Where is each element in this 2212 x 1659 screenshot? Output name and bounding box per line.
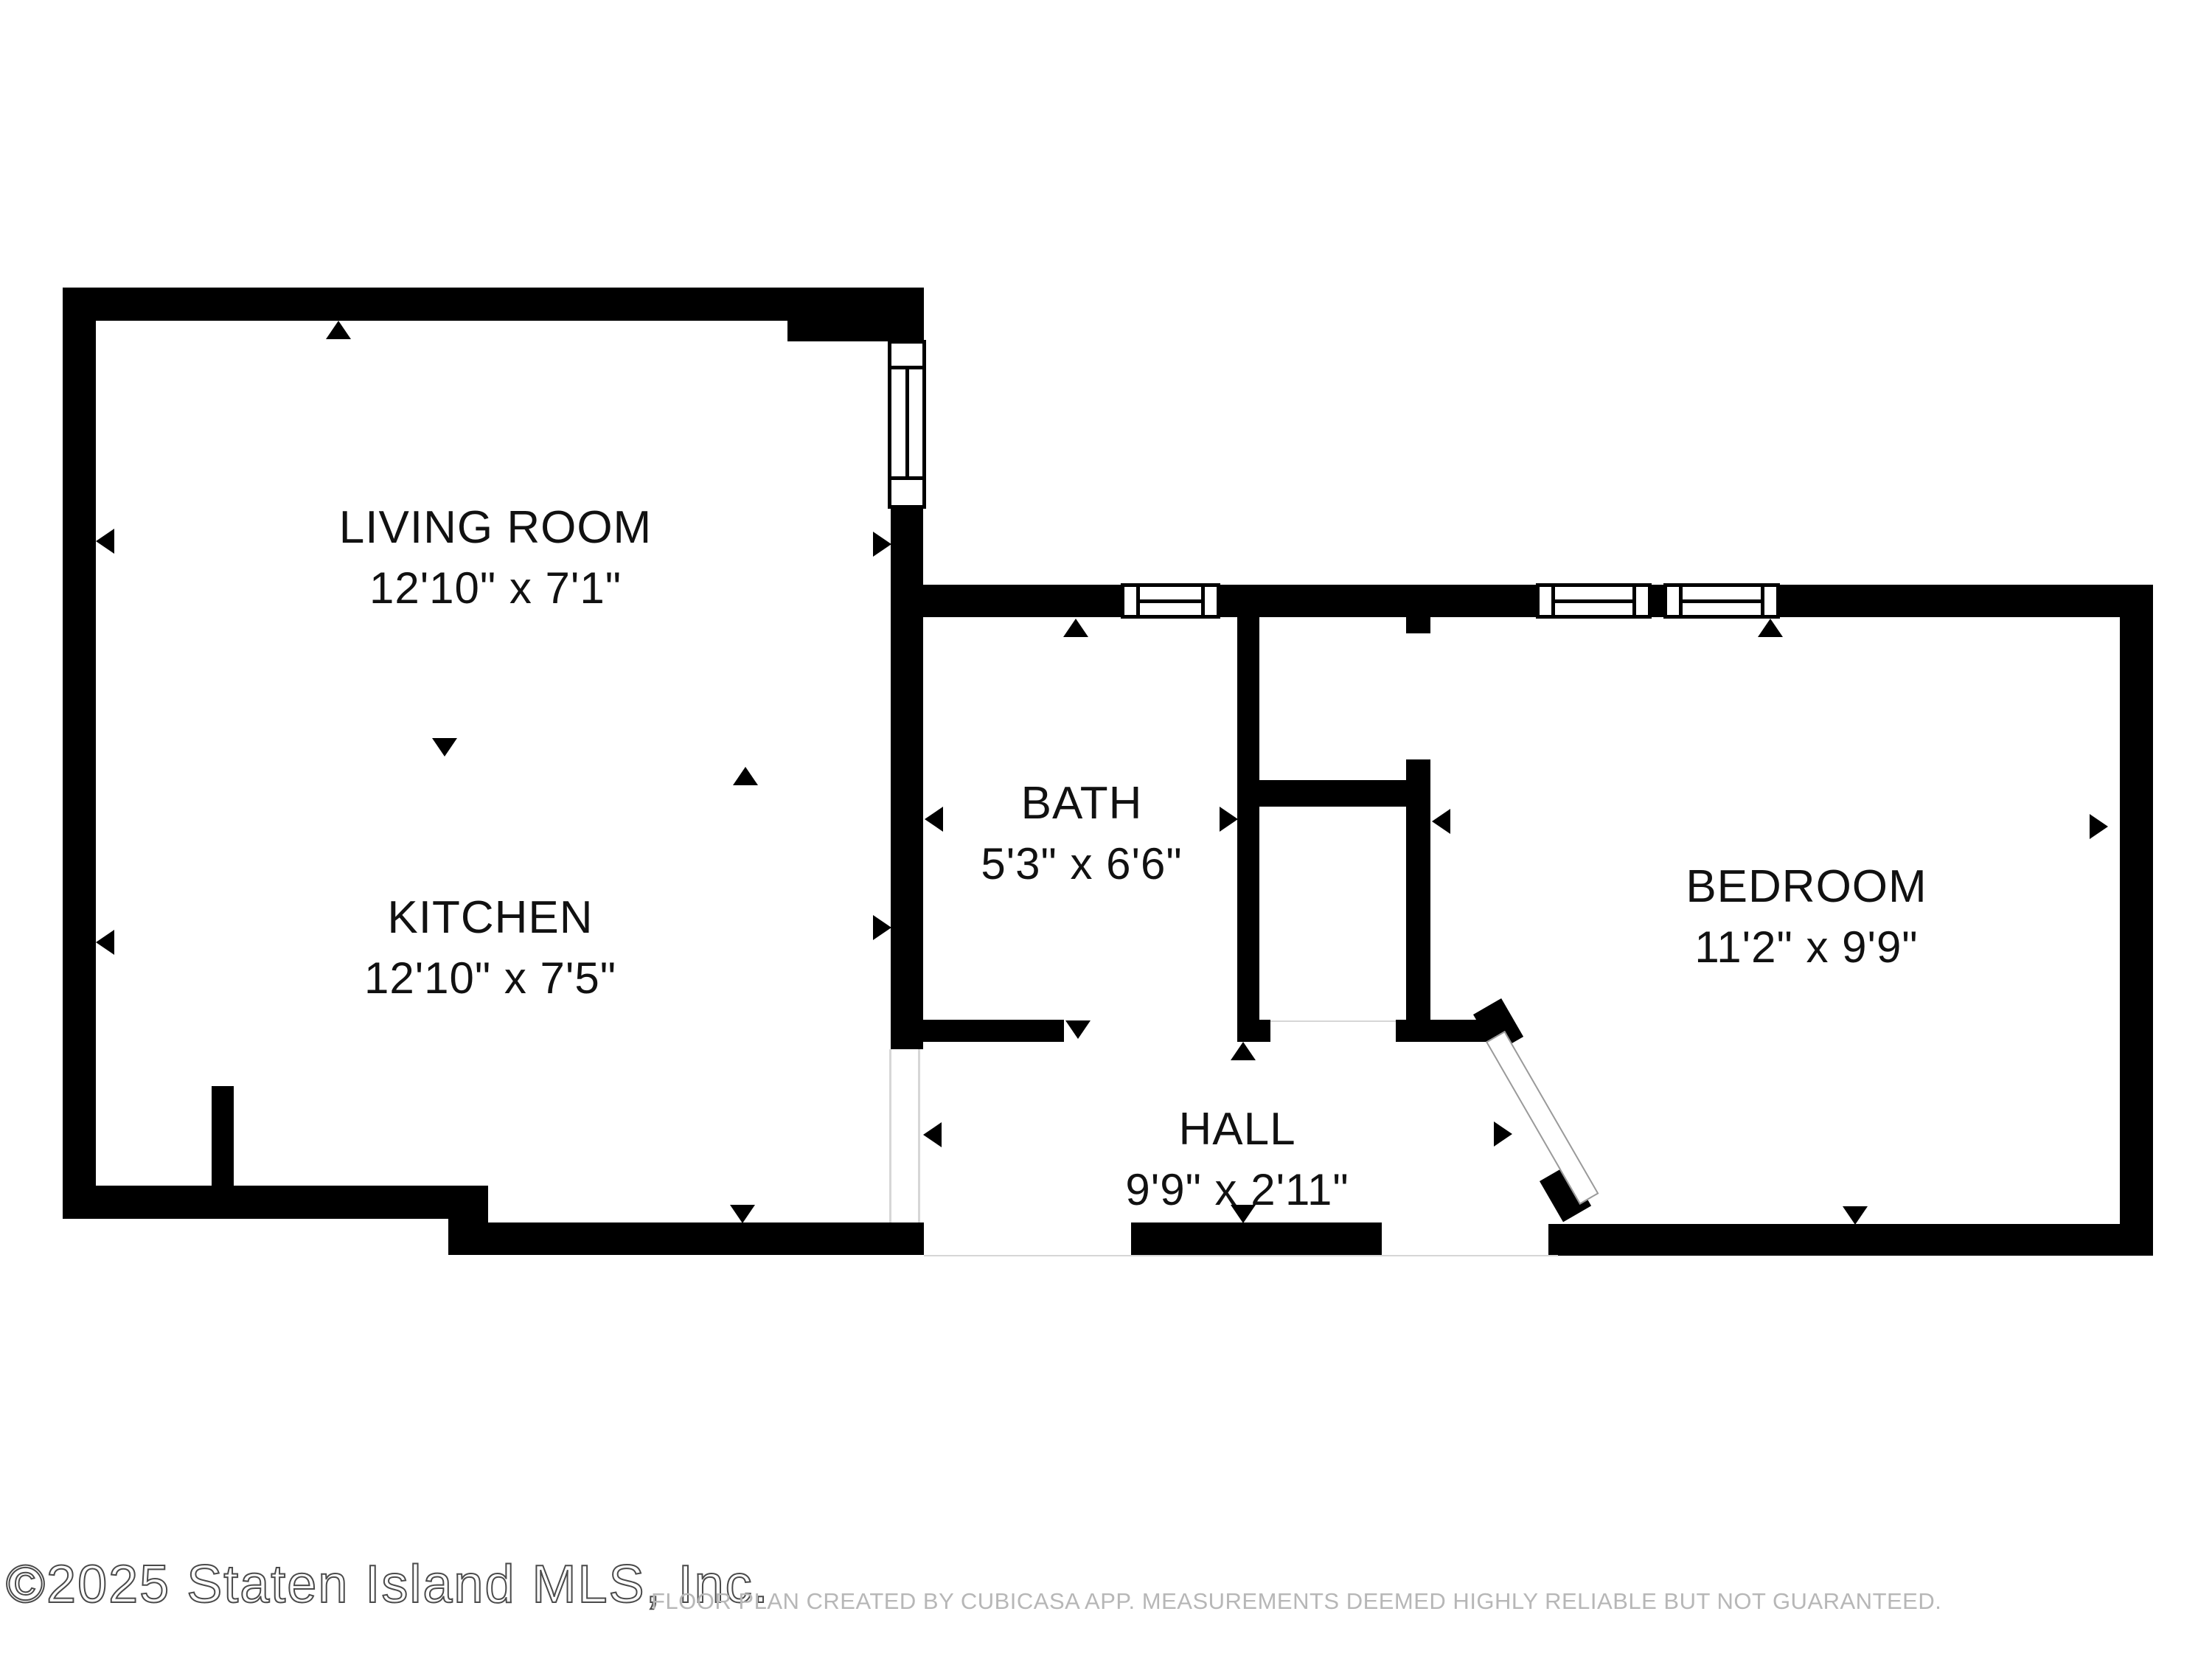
room-label-kitchen: KITCHEN 12'10" x 7'5" xyxy=(364,890,616,1011)
window-frame-line xyxy=(1554,599,1633,603)
wall-kitchen-bottom-left xyxy=(63,1186,488,1219)
measure-arrow-down-icon xyxy=(432,738,457,757)
room-label-bedroom: BEDROOM 11'2" x 9'9" xyxy=(1686,859,1927,980)
window-frame-line xyxy=(905,369,909,477)
measure-arrow-left-icon xyxy=(925,807,943,832)
measure-arrow-up-icon xyxy=(326,321,351,339)
room-label-living-room: LIVING ROOM 12'10" x 7'1" xyxy=(339,500,652,621)
room-label-bath: BATH 5'3" x 6'6" xyxy=(981,776,1182,897)
window-bath xyxy=(1121,583,1220,619)
wall-bath-top xyxy=(923,585,1122,617)
measure-arrow-up-icon xyxy=(733,767,758,785)
wall-bedroom-window-divider xyxy=(1650,585,1665,617)
measure-arrow-up-icon xyxy=(1231,1042,1256,1060)
measure-arrow-left-icon xyxy=(1432,809,1450,834)
wall-kitchen-bottom-step xyxy=(448,1219,488,1255)
room-name: KITCHEN xyxy=(364,890,616,946)
measure-arrow-left-icon xyxy=(923,1122,942,1147)
doorway-line-left xyxy=(889,1049,891,1222)
wall-living-top xyxy=(63,288,924,321)
floor-hairline-closet xyxy=(1270,1020,1396,1022)
floor-hairline-hall xyxy=(924,1255,1558,1256)
wall-hall-bottom xyxy=(1131,1222,1382,1255)
measure-arrow-right-icon xyxy=(1494,1121,1512,1147)
room-dimensions: 5'3" x 6'6" xyxy=(981,832,1182,897)
room-name: BEDROOM xyxy=(1686,859,1927,915)
measure-arrow-left-icon xyxy=(96,930,114,955)
wall-bath-right xyxy=(1237,606,1259,1020)
measure-arrow-down-icon xyxy=(730,1205,755,1223)
room-name: LIVING ROOM xyxy=(339,500,652,556)
measure-arrow-up-icon xyxy=(1063,619,1088,637)
wall-kitchen-stub xyxy=(212,1086,234,1186)
measure-arrow-down-icon xyxy=(1843,1206,1868,1225)
room-dimensions: 12'10" x 7'1" xyxy=(339,556,652,621)
room-name: HALL xyxy=(1125,1102,1349,1158)
wall-kitchen-right xyxy=(891,507,923,1049)
wall-closet-top xyxy=(1219,585,1537,617)
room-label-hall: HALL 9'9" x 2'11" xyxy=(1125,1102,1349,1222)
wall-bedroom-top-right xyxy=(1778,585,2153,617)
wall-left-exterior xyxy=(63,288,96,1219)
window-bedroom-1 xyxy=(1536,583,1652,619)
window-bedroom-2 xyxy=(1663,583,1780,619)
window-living-room xyxy=(888,340,926,509)
measure-arrow-right-icon xyxy=(873,532,891,557)
wall-living-top-step xyxy=(787,321,924,341)
wall-kitchen-bottom-right xyxy=(488,1222,924,1255)
room-dimensions: 11'2" x 9'9" xyxy=(1686,915,1927,980)
room-name: BATH xyxy=(981,776,1182,832)
wall-hall-top-stub-a xyxy=(1237,1020,1270,1042)
wall-bedroom-right xyxy=(2120,585,2153,1256)
measure-arrow-right-icon xyxy=(2090,814,2108,839)
window-frame-line xyxy=(1682,599,1761,603)
measure-arrow-down-icon xyxy=(1065,1020,1091,1039)
measure-arrow-right-icon xyxy=(1220,807,1238,832)
room-dimensions: 12'10" x 7'5" xyxy=(364,946,616,1011)
wall-bedroom-left-stub-top xyxy=(1406,617,1430,633)
wall-bedroom-bottom xyxy=(1548,1224,2153,1256)
wall-bath-bottom xyxy=(923,1020,1064,1042)
disclaimer-text: FLOOR PLAN CREATED BY CUBICASA APP. MEAS… xyxy=(651,1587,1941,1616)
window-frame-line xyxy=(1139,599,1202,603)
measure-arrow-left-icon xyxy=(96,529,114,554)
wall-hall-top-stub-b xyxy=(1396,1020,1489,1042)
measure-arrow-right-icon xyxy=(873,915,891,940)
room-dimensions: 9'9" x 2'11" xyxy=(1125,1158,1349,1222)
wall-closet-divider xyxy=(1259,780,1430,807)
floor-plan: LIVING ROOM 12'10" x 7'1" KITCHEN 12'10"… xyxy=(0,0,2212,1659)
measure-arrow-up-icon xyxy=(1758,619,1783,637)
doorway-line-right xyxy=(918,1049,920,1222)
